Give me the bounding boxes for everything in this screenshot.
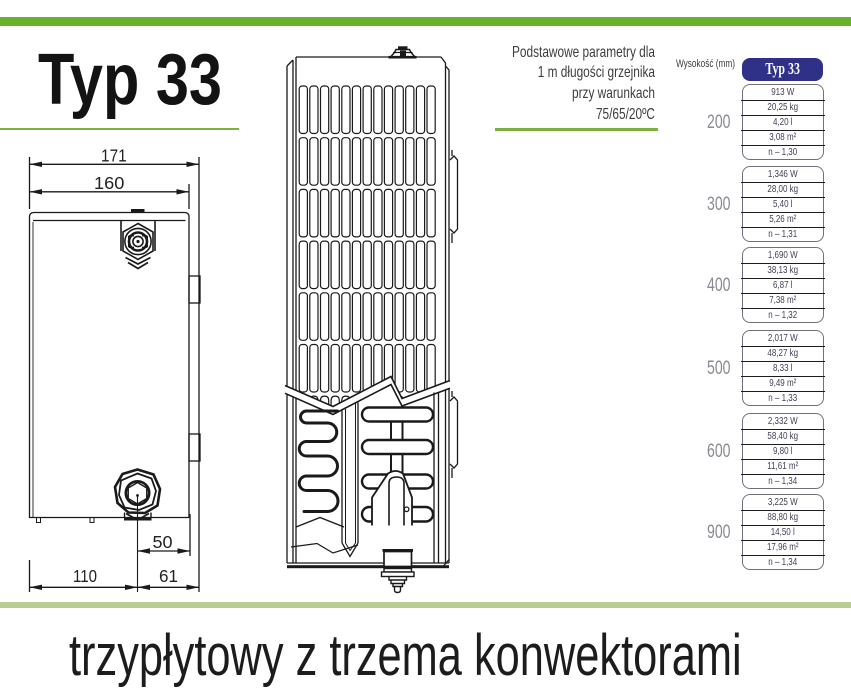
svg-text:61: 61 xyxy=(159,566,178,586)
svg-text:160: 160 xyxy=(94,173,125,193)
svg-text:50: 50 xyxy=(153,532,173,552)
svg-text:110: 110 xyxy=(73,566,97,586)
svg-text:171: 171 xyxy=(101,146,127,166)
